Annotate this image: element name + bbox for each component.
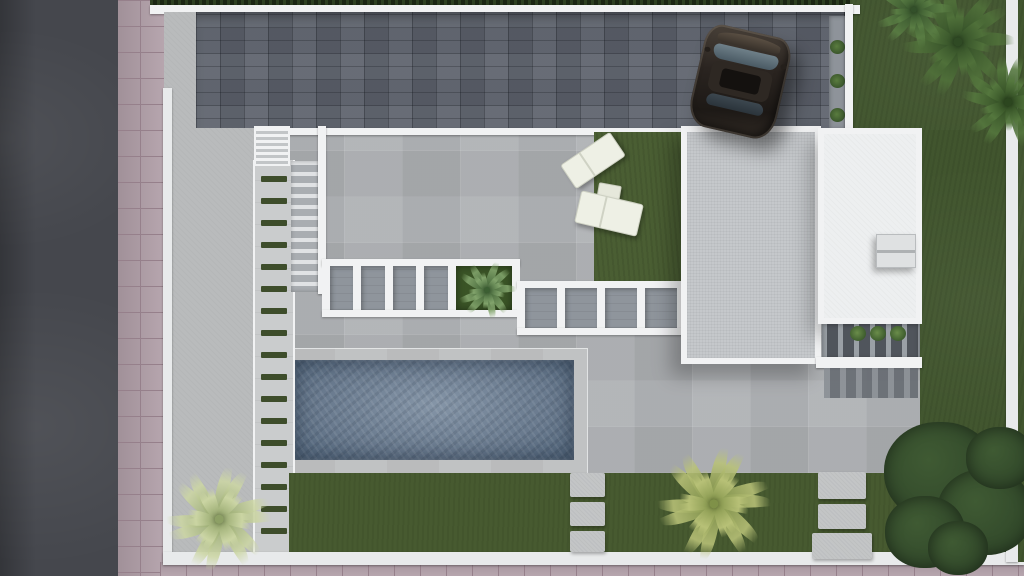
asphalt-road: [0, 0, 120, 576]
walkway-green-stripe: [261, 440, 287, 446]
pergola-plant: [890, 326, 906, 341]
pergola-post: [557, 288, 565, 328]
stepping-stone: [818, 504, 866, 529]
ac-unit-split: [877, 250, 915, 253]
pergola-post: [517, 288, 525, 328]
walkway-green-stripe: [261, 352, 287, 358]
pergola-row: [517, 288, 685, 328]
driveway-right-wall: [845, 4, 853, 134]
pergola-opening: [424, 266, 447, 310]
pergola-beam-top: [517, 281, 685, 288]
pergola-plant: [870, 326, 886, 341]
palm-bottom-center: [656, 446, 772, 562]
rooftop-ac-unit: [876, 234, 916, 268]
pergola-opening: [645, 288, 677, 328]
stepping-stone: [570, 531, 605, 552]
main-staircase: [291, 161, 319, 292]
walkway-green-stripe: [261, 198, 287, 204]
pergola-opening: [330, 266, 353, 310]
planter-shrub: [830, 40, 845, 54]
pergola-walkway-lower: [517, 281, 685, 335]
entry-steps: [254, 126, 290, 166]
pergola-opening: [525, 288, 557, 328]
walkway-green-stripe: [261, 308, 287, 314]
pergola-opening: [605, 288, 637, 328]
pergola-post: [416, 266, 424, 310]
pergola-shadow: [824, 368, 918, 398]
pergola-opening: [361, 266, 384, 310]
walkway-green-stripe: [261, 330, 287, 336]
pergola-post: [637, 288, 645, 328]
walkway-green-stripe: [261, 374, 287, 380]
walkway-green-stripe: [261, 176, 287, 182]
walkway-green-stripe: [261, 264, 287, 270]
lounger-seam: [579, 153, 596, 177]
pergola-post: [448, 266, 456, 310]
walkway-green-stripe: [261, 220, 287, 226]
large-bush: [966, 427, 1024, 488]
aerial-site-render: [0, 0, 1024, 576]
pergola-opening: [393, 266, 416, 310]
car-mirror-left: [704, 46, 711, 52]
house-roof-white: [818, 128, 922, 324]
driveway-planter-strip: [829, 16, 846, 130]
walkway-green-stripe: [261, 286, 287, 292]
large-bush: [928, 521, 988, 575]
palm-top-right-b: [960, 54, 1024, 150]
walkway-green-stripe: [261, 242, 287, 248]
pergola-slats: [822, 324, 920, 360]
house-roof-main: [681, 126, 821, 364]
palm-bottom-left: [165, 465, 273, 573]
palm-crown-center: [484, 287, 490, 293]
palm-crown-center: [215, 515, 224, 524]
pergola-post: [597, 288, 605, 328]
stepping-stone: [812, 533, 872, 559]
lounger-seam: [598, 197, 607, 228]
planter-shrub: [830, 74, 845, 88]
pergola-plant: [850, 326, 866, 341]
walkway-green-stripe: [261, 418, 287, 424]
car-sunroof: [719, 68, 762, 96]
swimming-pool-water: [294, 360, 574, 460]
pergola-post: [385, 266, 393, 310]
car-mirror-right: [780, 64, 787, 70]
pergola-bottom-beam: [816, 357, 922, 368]
walkway-green-stripe: [261, 396, 287, 402]
palm-crown-center: [1004, 98, 1012, 106]
stepping-stone: [570, 473, 605, 497]
palm-top-right-c: [874, 0, 954, 50]
sidewalk-left: [118, 0, 166, 576]
planter-shrub: [830, 108, 845, 122]
planter-plant: [457, 260, 517, 320]
pergola-opening: [565, 288, 597, 328]
pergola-post: [353, 266, 361, 310]
pergola-post: [322, 266, 330, 310]
stepping-stone: [818, 472, 866, 499]
pergola-beam-bottom: [517, 328, 685, 335]
stepping-stone: [570, 502, 605, 526]
